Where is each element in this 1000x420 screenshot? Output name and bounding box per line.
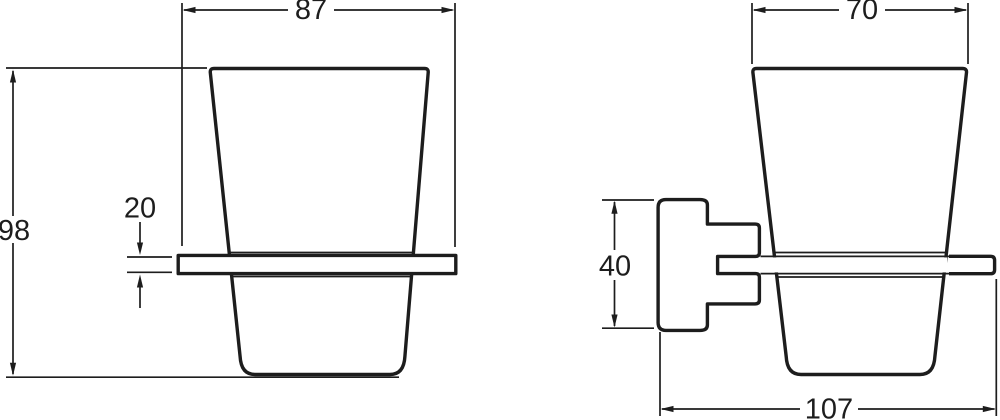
drawing-svg: 87 98 20	[0, 0, 1000, 420]
arrowhead-up-icon	[10, 70, 16, 83]
arrowhead-right-icon	[442, 7, 455, 13]
arrowhead-right-icon	[955, 7, 968, 13]
arrowhead-down-icon	[611, 315, 617, 328]
arrowhead-up-icon	[611, 201, 617, 214]
side-ring-front-lip	[949, 256, 995, 273]
arrowhead-down-icon	[10, 363, 16, 376]
wall-bracket-outline	[658, 200, 759, 331]
arrowhead-right-icon	[983, 406, 996, 412]
dim-label-front-height: 98	[0, 215, 30, 247]
arrowhead-up-icon	[137, 275, 143, 288]
side-cup-outline	[753, 69, 967, 375]
front-cup-outline	[210, 69, 428, 375]
dim-label-front-width: 87	[295, 0, 327, 26]
dim-ring-thickness: 20	[124, 193, 172, 309]
technical-drawing-canvas: 87 98 20	[0, 0, 1000, 420]
front-view	[178, 69, 456, 375]
front-holder-ring	[178, 255, 456, 273]
arrowhead-left-icon	[661, 406, 674, 412]
dim-side-width: 70	[752, 0, 968, 64]
arrowhead-left-icon	[753, 7, 766, 13]
dim-label-overall-depth: 107	[805, 394, 853, 420]
dim-label-plate-height: 40	[599, 251, 631, 283]
dim-label-side-width: 70	[846, 0, 878, 26]
side-view	[658, 69, 995, 375]
arrowhead-left-icon	[183, 7, 196, 13]
dim-label-ring-thickness: 20	[124, 193, 156, 225]
dim-plate-height: 40	[597, 200, 655, 328]
arrowhead-down-icon	[137, 243, 143, 256]
